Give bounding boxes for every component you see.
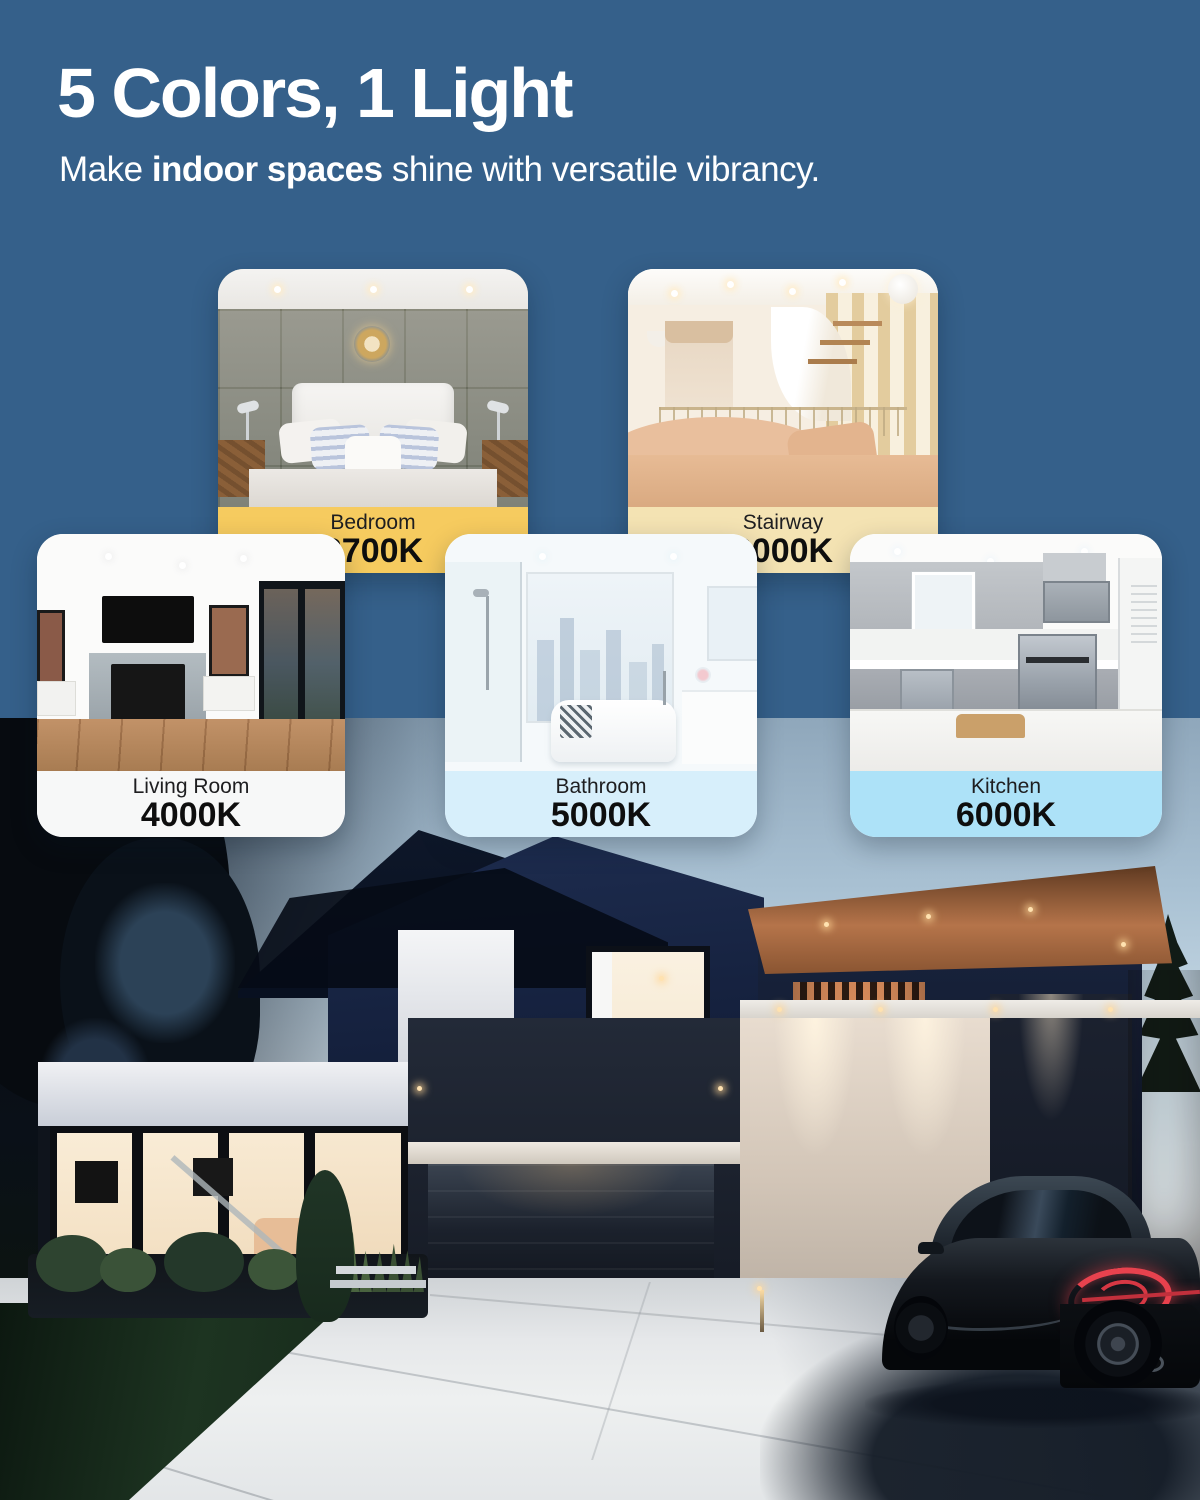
bollard-light: [760, 1290, 764, 1332]
garage-lintel: [408, 1142, 740, 1164]
recessed-light: [240, 555, 247, 562]
recessed-light: [105, 553, 112, 560]
mirror: [707, 586, 757, 661]
recessed-light: [839, 279, 846, 286]
garage-door-glow: [457, 1164, 686, 1217]
bedroom-photo: [218, 269, 528, 507]
room-name: Bathroom: [555, 776, 646, 797]
shower-head: [473, 589, 489, 597]
upper-cabinet-right: [1043, 553, 1105, 581]
shower-bar: [486, 596, 489, 691]
microwave: [1043, 581, 1109, 623]
sports-car: [878, 1176, 1200, 1432]
firebox: [111, 664, 185, 723]
porch-step: [336, 1266, 416, 1274]
subtitle-suffix: shine with versatile vibrancy.: [383, 150, 820, 189]
door-pane: [264, 589, 298, 726]
room-card-kitchen: Kitchen 6000K: [850, 534, 1162, 837]
room-card-living-room: Living Room 4000K: [37, 534, 345, 837]
cooktop: [1026, 657, 1089, 663]
left-wing-fascia: [38, 1062, 420, 1126]
tub-faucet: [663, 671, 666, 704]
recessed-light: [670, 553, 677, 560]
range-stove: [1018, 634, 1097, 714]
porch-step: [330, 1280, 426, 1288]
door-pane: [305, 589, 339, 726]
car-mirror: [918, 1242, 944, 1254]
bathroom-photo: [445, 534, 757, 771]
room-card-bathroom: Bathroom 5000K: [445, 534, 757, 837]
color-temp: 6000K: [956, 798, 1056, 832]
room-name: Living Room: [133, 776, 250, 797]
shrub: [164, 1232, 244, 1293]
card-label: Living Room 4000K: [37, 771, 345, 837]
vanity-counter: [682, 690, 757, 763]
striped-towel: [560, 705, 591, 738]
ceiling-light: [659, 976, 664, 981]
glass-doors: [259, 581, 345, 733]
page: 5 Colors, 1 Light Make indoor spaces shi…: [0, 0, 1200, 1500]
pantry-door: [1118, 558, 1162, 710]
shrub: [100, 1248, 156, 1293]
flower-vase: [695, 667, 711, 683]
stair-step: [820, 340, 870, 345]
bread-basket: [956, 714, 1025, 738]
soffit-downlight: [1108, 1007, 1113, 1012]
subtitle: Make indoor spaces shine with versatile …: [59, 150, 820, 190]
subtitle-prefix: Make: [59, 150, 152, 189]
recessed-light: [274, 286, 281, 293]
window-bench: [203, 676, 254, 711]
wall-sconce: [417, 1086, 422, 1091]
soffit-downlight: [777, 1007, 782, 1012]
curtain-valance: [665, 321, 733, 342]
tv: [102, 596, 194, 643]
soffit-downlight: [1028, 907, 1033, 912]
stair-step: [833, 321, 883, 326]
downlight-cone: [885, 1018, 965, 1154]
stairway-photo: [628, 269, 938, 507]
header: 5 Colors, 1 Light Make indoor spaces shi…: [57, 58, 820, 190]
shrub: [248, 1249, 300, 1291]
card-label: Bathroom 5000K: [445, 771, 757, 837]
recessed-light: [894, 548, 901, 555]
room-card-stairway: Stairway 3000K: [628, 269, 938, 573]
room-name: Kitchen: [971, 776, 1041, 797]
page-title: 5 Colors, 1 Light: [57, 58, 820, 128]
recessed-light: [179, 562, 186, 569]
subtitle-bold: indoor spaces: [152, 150, 383, 189]
left-cabinet: [37, 681, 76, 716]
room-card-bedroom: Bedroom 2700K: [218, 269, 528, 573]
soffit-downlight: [1121, 942, 1126, 947]
shrub: [36, 1235, 108, 1293]
recessed-light: [466, 286, 473, 293]
bollard-glow: [757, 1286, 762, 1291]
wood-floor: [37, 719, 345, 771]
small-soffit: [740, 1000, 1200, 1018]
soffit-downlight: [993, 1007, 998, 1012]
skyline-building: [537, 640, 554, 721]
room-name: Stairway: [743, 512, 824, 533]
downlight-cone: [775, 1018, 855, 1154]
soffit-downlight: [878, 1007, 883, 1012]
kitchen-photo: [850, 534, 1162, 771]
recessed-light: [370, 286, 377, 293]
front-wheel: [894, 1296, 948, 1360]
bed-blanket: [249, 469, 497, 507]
room-name: Bedroom: [330, 512, 415, 533]
stair-step: [808, 359, 858, 364]
dishwasher: [900, 669, 954, 713]
wall-sconce: [718, 1086, 723, 1091]
color-temp: 4000K: [141, 798, 241, 832]
sofa-body: [628, 455, 938, 507]
card-label: Kitchen 6000K: [850, 771, 1162, 837]
living-room-photo: [37, 534, 345, 771]
soffit-downlight: [926, 914, 931, 919]
tv-in-window: [75, 1161, 118, 1203]
soffit-downlight: [824, 922, 829, 927]
rear-wheel: [1074, 1300, 1162, 1388]
pendant-lamp: [888, 274, 918, 304]
recessed-light: [539, 553, 546, 560]
color-temp: 5000K: [551, 798, 651, 832]
mid-window: [209, 605, 249, 677]
